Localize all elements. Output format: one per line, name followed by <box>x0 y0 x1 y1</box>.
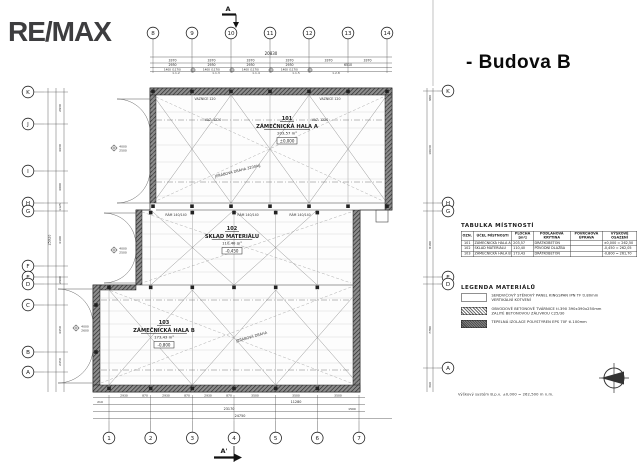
north-arrow-icon <box>599 363 629 393</box>
legend-title: LEGENDA MATERIÁLŮ <box>461 284 640 291</box>
svg-text:3370: 3370 <box>363 59 371 63</box>
svg-text:2930: 2930 <box>120 393 128 397</box>
svg-text:24750: 24750 <box>235 414 246 418</box>
svg-text:3370: 3370 <box>207 59 215 63</box>
svg-text:K: K <box>446 89 450 95</box>
svg-text:2930: 2930 <box>204 393 212 397</box>
svg-text:13: 13 <box>344 31 352 37</box>
svg-text:4100: 4100 <box>58 236 62 244</box>
room-table-grid: OZN.ÚČEL MÍSTNOSTIPLOCHA [m²]PODLAHOVÁ K… <box>461 231 637 257</box>
svg-text:3500: 3500 <box>251 393 259 397</box>
svg-text:C: C <box>26 303 30 309</box>
svg-text:F: F <box>26 264 29 270</box>
svg-text:RÁM 140/140: RÁM 140/140 <box>165 212 186 217</box>
svg-text:203,57 m²: 203,57 m² <box>277 131 297 136</box>
svg-text:3370: 3370 <box>324 59 332 63</box>
svg-text:8180: 8180 <box>428 241 432 249</box>
svg-text:3500: 3500 <box>292 393 300 397</box>
svg-text:3370: 3370 <box>168 59 176 63</box>
svg-text:20830: 20830 <box>265 51 278 56</box>
svg-text:4450: 4450 <box>58 326 62 334</box>
svg-text:J: J <box>26 122 29 128</box>
svg-text:A: A <box>225 5 230 13</box>
room-table-header: PLOCHA [m²] <box>512 231 533 240</box>
dark-swatch <box>461 320 487 328</box>
svg-text:870: 870 <box>226 393 232 397</box>
svg-text:4: 4 <box>232 436 236 442</box>
svg-text:210: 210 <box>97 400 103 404</box>
svg-text:1.1.4: 1.1.4 <box>252 71 260 75</box>
svg-text:7: 7 <box>357 436 361 442</box>
room-table-header: ÚČEL MÍSTNOSTI <box>473 231 512 240</box>
svg-text:6: 6 <box>316 436 320 442</box>
material-legend: LEGENDA MATERIÁLŮ SENDVIČOVÝ STĚNOVÝ PAN… <box>461 284 640 332</box>
svg-text:D: D <box>446 282 450 288</box>
svg-text:A: A <box>446 366 450 372</box>
svg-text:1.2.8: 1.2.8 <box>332 71 340 75</box>
svg-text:360: 360 <box>428 382 432 388</box>
svg-text:-0,450: -0,450 <box>226 248 239 253</box>
room-table-header: VÝŠKOVÉ OSAZENÍ <box>602 231 636 240</box>
room-table-header: OZN. <box>461 231 473 240</box>
panel-swatch <box>461 294 487 302</box>
svg-text:10630: 10630 <box>428 145 432 155</box>
room-table-header: POVRCHOVÁ ÚPRAVA <box>570 231 602 240</box>
svg-text:D: D <box>26 282 30 288</box>
svg-text:2930: 2930 <box>162 393 170 397</box>
svg-text:2500: 2500 <box>119 149 127 153</box>
drawing-sheet: RE/MAX - Budova B 2083033703370337033703… <box>0 0 640 468</box>
svg-text:1500: 1500 <box>348 407 356 411</box>
hatch-swatch <box>461 307 487 315</box>
svg-text:4630: 4630 <box>58 144 62 152</box>
svg-text:14: 14 <box>383 31 391 37</box>
svg-text:RÁM 140/140: RÁM 140/140 <box>237 212 258 217</box>
svg-text:VAZNICE 120: VAZNICE 120 <box>319 97 340 101</box>
svg-text:7780: 7780 <box>428 326 432 334</box>
svg-text:A: A <box>26 370 30 376</box>
svg-text:VAZNICE 120: VAZNICE 120 <box>194 97 215 101</box>
legend-item: TEPELNÁ IZOLACE POLYSTYREN EPS 70F tl.10… <box>461 320 640 329</box>
room-table-cell: ZÁMEČNICKÁ HALA B <box>473 251 512 256</box>
legend-item-text: SENDVIČOVÝ STĚNOVÝ PANEL KINGSPAN IPN TF… <box>492 293 599 302</box>
svg-text:2500: 2500 <box>119 251 127 255</box>
svg-text:3500: 3500 <box>334 393 342 397</box>
svg-text:-0,800: -0,800 <box>158 342 171 347</box>
svg-text:1: 1 <box>107 436 111 442</box>
svg-text:5: 5 <box>274 436 278 442</box>
svg-text:2930: 2930 <box>58 104 62 112</box>
legend-item-text: TEPELNÁ IZOLACE POLYSTYREN EPS 70F tl.10… <box>492 320 587 325</box>
svg-text:B: B <box>26 350 30 356</box>
room-table-row: 103ZÁMEČNICKÁ HALA B173,43DRÁTKOBETON-0,… <box>461 251 637 256</box>
svg-text:1.1.2: 1.1.2 <box>172 71 180 75</box>
svg-text:10: 10 <box>227 31 235 37</box>
svg-text:K: K <box>26 90 30 96</box>
room-table-header: PODLAHOVÁ KRYTINA <box>533 231 570 240</box>
room-table-cell: 173,43 <box>512 251 533 256</box>
svg-text:2: 2 <box>149 436 153 442</box>
height-system-note: Výškový systém B.p.v. ±0,000 = 262,500 m… <box>458 392 638 397</box>
svg-text:870: 870 <box>142 393 148 397</box>
svg-text:4000: 4000 <box>58 183 62 191</box>
room-table: TABULKA MÍSTNOSTÍ OZN.ÚČEL MÍSTNOSTIPLOC… <box>461 222 637 257</box>
svg-text:25920: 25920 <box>48 235 52 246</box>
svg-text:±0,000: ±0,000 <box>280 138 295 143</box>
svg-text:1.1.3: 1.1.3 <box>212 71 220 75</box>
legend-item: OBVODOVÉ BETONOVÉ TVÁRNICE tl.390 390x39… <box>461 306 640 315</box>
svg-text:2450: 2450 <box>58 358 62 366</box>
svg-text:110,40 m²: 110,40 m² <box>222 241 242 246</box>
svg-text:980: 980 <box>428 95 432 101</box>
svg-text:G: G <box>26 209 30 215</box>
svg-text:9: 9 <box>190 31 194 37</box>
svg-text:12: 12 <box>305 31 312 37</box>
svg-text:11280: 11280 <box>291 400 302 404</box>
svg-text:3: 3 <box>191 436 195 442</box>
room-table-title: TABULKA MÍSTNOSTÍ <box>461 222 637 229</box>
svg-text:11: 11 <box>266 31 274 37</box>
legend-item-text: OBVODOVÉ BETONOVÉ TVÁRNICE tl.390 390x39… <box>492 306 602 315</box>
room-table-cell: DRÁTKOBETON <box>533 251 570 256</box>
room-table-cell: -0,800 = 261,70 <box>602 251 636 256</box>
building-outline: 1.1.21.1.31.1.41.1.51.2.8400025004000250… <box>58 67 392 392</box>
svg-text:870: 870 <box>184 393 190 397</box>
svg-text:1.1.5: 1.1.5 <box>292 71 300 75</box>
svg-text:VAZ. 1220: VAZ. 1220 <box>205 118 221 122</box>
svg-text:2600: 2600 <box>81 329 89 333</box>
svg-text:8: 8 <box>151 31 155 37</box>
room-table-cell: ±0,000 = 262,50 <box>602 241 636 246</box>
svg-text:3370: 3370 <box>285 59 293 63</box>
svg-text:1125: 1125 <box>58 203 62 211</box>
svg-text:A': A' <box>220 447 227 455</box>
svg-text:VAZ. 1220: VAZ. 1220 <box>312 118 328 122</box>
svg-text:G: G <box>446 209 450 215</box>
svg-text:2900: 2900 <box>58 276 62 284</box>
svg-text:ZÁMEČNICKÁ HALA A: ZÁMEČNICKÁ HALA A <box>256 123 318 130</box>
svg-text:23170: 23170 <box>224 407 235 411</box>
svg-text:3370: 3370 <box>246 59 254 63</box>
legend-item: SENDVIČOVÝ STĚNOVÝ PANEL KINGSPAN IPN TF… <box>461 293 640 302</box>
svg-text:RÁM 140/140: RÁM 140/140 <box>289 212 310 217</box>
room-table-cell: 103 <box>461 251 473 256</box>
room-table-cell <box>570 251 602 256</box>
svg-text:173,43 m²: 173,43 m² <box>154 335 174 340</box>
svg-text:ZÁMEČNICKÁ HALA B: ZÁMEČNICKÁ HALA B <box>133 327 195 334</box>
svg-text:SKLAD MATERIÁLU: SKLAD MATERIÁLU <box>205 233 259 240</box>
